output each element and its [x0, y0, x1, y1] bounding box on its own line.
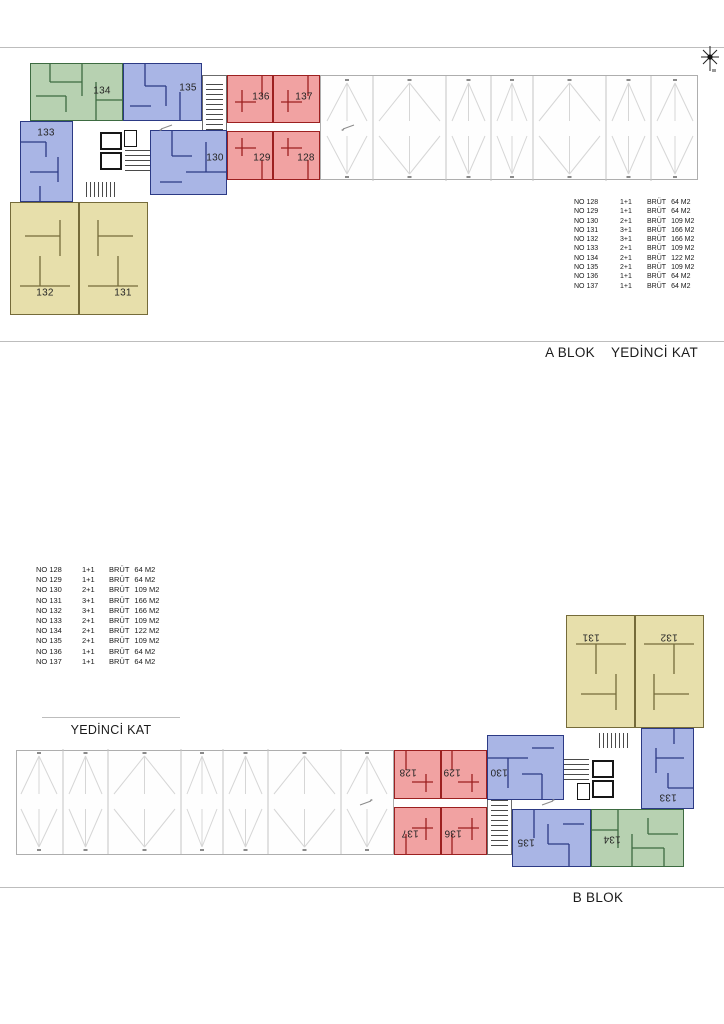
unit-table-a: NO 1281+1BRÜT64 M2NO 1291+1BRÜT64 M2NO 1…	[574, 199, 694, 292]
unit-table-row: NO 1291+1BRÜT64 M2	[574, 208, 694, 217]
unit-number-134: 134	[93, 86, 111, 97]
unit-number-130: 130	[206, 153, 224, 164]
lower-stair	[86, 182, 116, 197]
unit-number-129: 129	[253, 153, 271, 164]
unit-number-128: 128	[297, 153, 315, 164]
divider-a	[0, 341, 724, 342]
entrance-arrow-marker	[358, 798, 374, 808]
unit-number-132: 132	[660, 632, 678, 643]
unit-table-row: NO 1313+1BRÜT166 M2	[36, 596, 159, 606]
caption-b-blok: B BLOK	[542, 890, 654, 905]
unit-table-row: NO 1371+1BRÜT64 M2	[574, 283, 694, 292]
unit-table-row: NO 1291+1BRÜT64 M2	[36, 575, 159, 585]
unit-table-row: NO 1332+1BRÜT109 M2	[574, 245, 694, 254]
floorplan-sheet: 134135136137133130129128132131 NO 1281+1…	[0, 0, 724, 1024]
unit-table-row: NO 1281+1BRÜT64 M2	[574, 199, 694, 208]
unit-table-row: NO 1352+1BRÜT109 M2	[574, 264, 694, 273]
unit-number-137: 137	[401, 828, 419, 839]
unit-number-132: 132	[36, 288, 54, 299]
core-stair	[564, 756, 589, 780]
entrance-arrow-marker	[340, 122, 356, 132]
unit-number-136: 136	[252, 92, 270, 103]
elevator	[592, 780, 614, 798]
unit-number-128: 128	[399, 767, 417, 778]
core-stair	[125, 150, 150, 174]
caption-a-blok: A BLOK YEDİNCİ KAT	[545, 345, 698, 360]
a-floor-label: YEDİNCİ KAT	[611, 345, 698, 360]
unit-number-136: 136	[444, 828, 462, 839]
unit-number-130: 130	[490, 767, 508, 778]
shaft	[577, 783, 590, 800]
unit-number-135: 135	[179, 83, 197, 94]
unit-number-133: 133	[659, 792, 677, 803]
unit-table-row: NO 1342+1BRÜT122 M2	[574, 255, 694, 264]
elevator	[100, 132, 122, 150]
plan-b-blok: 134135136137133130129128132131	[14, 612, 704, 870]
entrance-arrow-marker	[158, 122, 174, 132]
unit-number-131: 131	[582, 632, 600, 643]
unit-table-row: NO 1281+1BRÜT64 M2	[36, 565, 159, 575]
lower-stair	[598, 733, 628, 748]
a-blok-label: A BLOK	[545, 345, 595, 360]
unit-table-row: NO 1302+1BRÜT109 M2	[574, 218, 694, 227]
unit-number-133: 133	[37, 128, 55, 139]
unit-number-137: 137	[295, 92, 313, 103]
unit-number-134: 134	[603, 834, 621, 845]
shaft	[124, 130, 137, 147]
unit-number-131: 131	[114, 288, 132, 299]
unit-number-129: 129	[443, 767, 461, 778]
entrance-arrow-marker	[540, 798, 556, 808]
unit-number-135: 135	[517, 837, 535, 848]
compass-north-icon	[697, 43, 724, 75]
divider-top	[0, 47, 724, 48]
elevator	[592, 760, 614, 778]
unit-table-row: NO 1323+1BRÜT166 M2	[574, 236, 694, 245]
divider-b	[0, 887, 724, 888]
unit-table-row: NO 1361+1BRÜT64 M2	[574, 273, 694, 282]
unit-table-row: NO 1302+1BRÜT109 M2	[36, 585, 159, 595]
unit-table-row: NO 1313+1BRÜT166 M2	[574, 227, 694, 236]
elevator	[100, 152, 122, 170]
